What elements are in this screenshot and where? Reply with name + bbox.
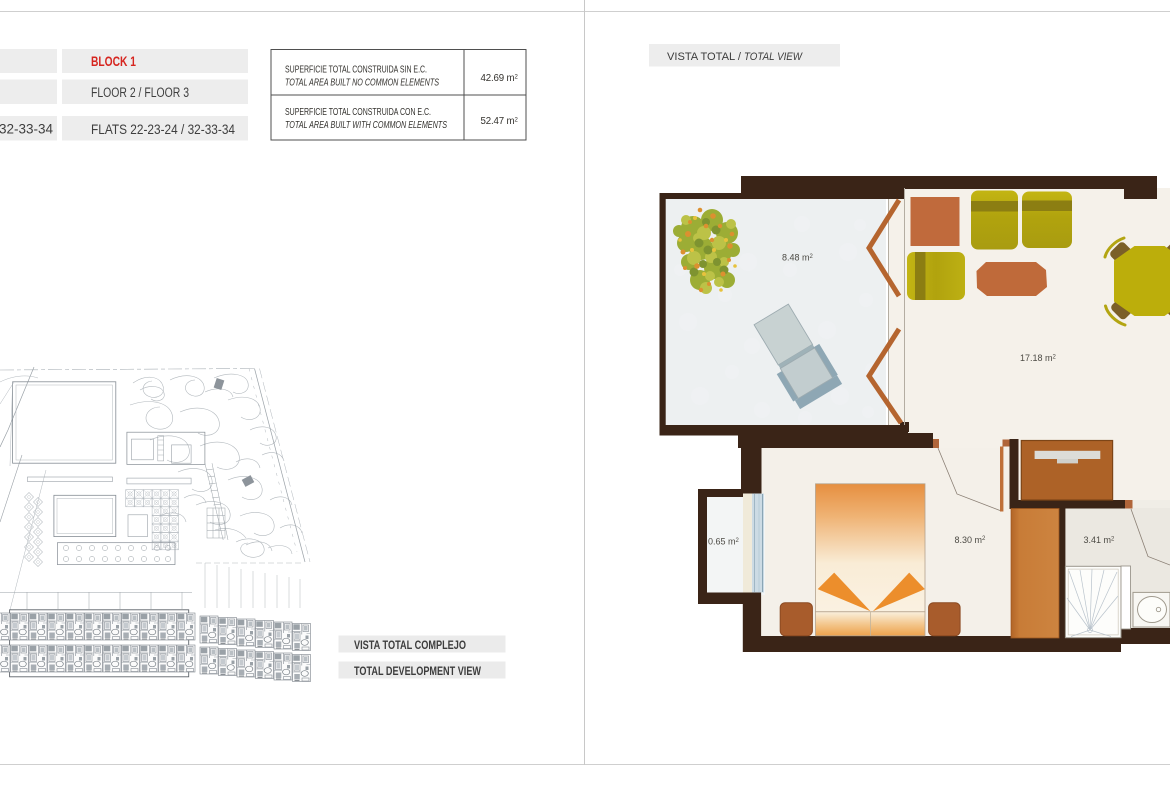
svg-text:8.48 m2: 8.48 m2 bbox=[782, 253, 814, 263]
svg-text:0.65 m2: 0.65 m2 bbox=[708, 537, 740, 547]
svg-text:SUPERFICIE TOTAL CONSTRUIDA CO: SUPERFICIE TOTAL CONSTRUIDA CON E.C. bbox=[285, 107, 431, 118]
svg-text:SUPERFICIE TOTAL CONSTRUIDA SI: SUPERFICIE TOTAL CONSTRUIDA SIN E.C. bbox=[285, 65, 427, 76]
svg-text:VISTA TOTAL COMPLEJO: VISTA TOTAL COMPLEJO bbox=[354, 639, 466, 652]
svg-text:TOTAL AREA BUILT WITH COMMON E: TOTAL AREA BUILT WITH COMMON ELEMENTS bbox=[285, 120, 447, 131]
svg-text:3.41 m2: 3.41 m2 bbox=[1084, 535, 1116, 545]
svg-text:BLOCK 1: BLOCK 1 bbox=[91, 54, 136, 69]
svg-text:42.69 m2: 42.69 m2 bbox=[481, 73, 519, 84]
svg-text:8.30 m2: 8.30 m2 bbox=[955, 535, 987, 545]
svg-text:52.47 m2: 52.47 m2 bbox=[481, 116, 519, 127]
svg-text:32-33-34: 32-33-34 bbox=[0, 122, 53, 137]
svg-text:17.18 m2: 17.18 m2 bbox=[1020, 353, 1057, 363]
svg-text:VISTA TOTAL / TOTAL VIEW: VISTA TOTAL / TOTAL VIEW bbox=[667, 51, 803, 63]
svg-text:FLOOR 2 / FLOOR 3: FLOOR 2 / FLOOR 3 bbox=[91, 85, 189, 100]
svg-text:TOTAL AREA BUILT NO COMMON ELE: TOTAL AREA BUILT NO COMMON ELEMENTS bbox=[285, 78, 439, 89]
svg-text:TOTAL DEVELOPMENT VIEW: TOTAL DEVELOPMENT VIEW bbox=[354, 665, 481, 678]
svg-text:FLATS 22-23-24 / 32-33-34: FLATS 22-23-24 / 32-33-34 bbox=[91, 122, 235, 137]
